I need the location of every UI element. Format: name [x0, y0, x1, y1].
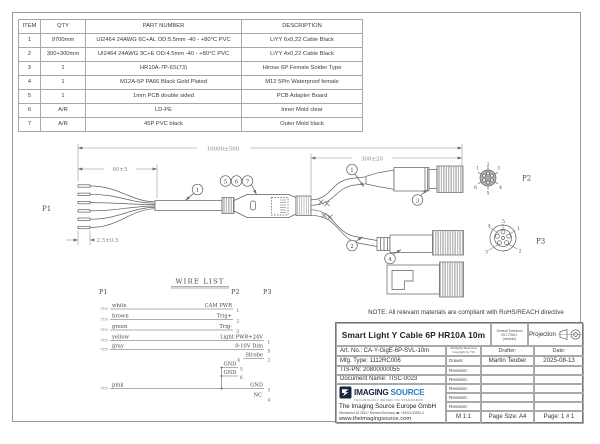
p3-pin-number: 2 [518, 248, 521, 254]
tin-label: TIN [101, 338, 109, 343]
drawing-title: Smart Light Y Cable 6P HR10A 10m [336, 323, 491, 346]
p2-tick [495, 172, 498, 174]
gnd-junction-dot [221, 375, 223, 377]
m12-connector-rotated [387, 262, 464, 297]
wire-signal-label: Trig+ [217, 314, 232, 320]
materials-note: NOTE: All relevant materials are complia… [352, 309, 580, 316]
wire-signal-label: 0-10V Dim [235, 344, 263, 350]
wire-signal-label: Trig- [219, 324, 232, 330]
arrowhead [311, 157, 315, 160]
p2-pin-hole [487, 181, 490, 184]
wire-list-header-p2: P2 [231, 288, 240, 296]
p2-pin-number: 4 [499, 185, 502, 191]
y-splitter-mold [234, 195, 296, 218]
copyright-box: All Rights Reserved Copyright by TIS [446, 346, 481, 356]
wire-signal-label: Strobe [245, 353, 263, 359]
p2-tick [478, 172, 481, 174]
p2-pin-number: 3 [497, 166, 500, 172]
p3-pin-number: 4 [487, 223, 490, 229]
main-cable [155, 201, 222, 211]
wire-color-label: yellow [111, 335, 129, 341]
dimension-strip-text: 60±5 [112, 167, 128, 173]
tinned-wire-end [78, 193, 90, 195]
wire [90, 209, 156, 228]
revision-value-cell [481, 402, 534, 411]
logo-text-imaging: IMAGING [354, 388, 389, 397]
revision-label: Revision: [446, 384, 481, 393]
svg-text:1: 1 [196, 188, 200, 194]
p2-tick [495, 182, 498, 184]
tinned-wire-end [78, 201, 90, 203]
scale-cell: M 1:1 [446, 411, 481, 425]
arrowhead [90, 239, 94, 242]
tinned-wire-end [78, 226, 90, 228]
company-name: The Imaging Source Europe GmbH [339, 403, 445, 410]
wire-list-header-p1: P1 [99, 288, 108, 296]
logo-text-source: SOURCE [391, 388, 425, 397]
wire-list-row: TINwhiteCAM PWR1 [101, 303, 240, 314]
dimension-tin-text: 2.5±0.5 [97, 238, 120, 244]
wire-list-row: TINpinkGND3 [101, 383, 271, 394]
pin-number: 1 [268, 340, 271, 345]
tin-label: TIN [101, 327, 109, 332]
projection-symbol-icon [558, 328, 583, 341]
logo-cell: IMAGINGSOURCE TECHNOLOGY BASED ON STANDA… [336, 384, 446, 425]
wire-signal-label: CAM PWR [205, 303, 233, 309]
revision-value-cell [534, 402, 584, 411]
pin-number: 3 [268, 388, 271, 393]
pin-number: 6 [240, 376, 243, 381]
p3-pin-number: 1 [517, 226, 520, 232]
tis-pn: TIS-PN: 20800000055 [336, 366, 446, 375]
pin-number: 1 [237, 309, 240, 314]
p2-pin-number: 6 [474, 185, 477, 191]
wire-list-title: WIRE LIST [175, 278, 224, 286]
pin-number: 4 [237, 358, 240, 363]
p2-pin-hole [487, 172, 490, 175]
art-no: Art. No.: CA-Y-GigE-6P-SVL-10m [336, 346, 446, 356]
revision-value-cell [481, 375, 534, 384]
p2-label: P2 [522, 175, 531, 183]
projection-box: Projection [528, 323, 584, 346]
svg-text:7: 7 [246, 179, 250, 185]
arrowhead [458, 157, 462, 160]
page-number-cell: Page: 1 # 1 [534, 411, 584, 425]
p2-pinout: 123456 P2 [474, 162, 531, 197]
wire-color-label: brown [112, 314, 129, 320]
p1-wires [78, 185, 156, 229]
p2-pin-hole [490, 179, 493, 182]
revision-label: Revision: [446, 402, 481, 411]
pin-number: 4 [268, 398, 271, 403]
ferrite-hatch [223, 198, 233, 213]
p2-pin-number: 2 [486, 162, 489, 168]
revision-value-cell [534, 393, 584, 402]
revision-value-cell [481, 393, 534, 402]
dimension-overall-text: 10000±500 [207, 146, 240, 152]
svg-text:2: 2 [350, 244, 354, 250]
revision-value-cell [481, 384, 534, 393]
p3-label: P3 [536, 238, 545, 246]
revision-label: Revision: [446, 375, 481, 384]
dimension-overall-length: 10000±500 [78, 146, 462, 152]
wire-list-row: TINbrownTrig+2 [101, 314, 240, 325]
p2-pin-hole [483, 174, 486, 177]
svg-text:4: 4 [388, 257, 392, 263]
wire-list: WIRE LIST P1 P2 P3 TINwhiteCAM PWR1TINbr… [99, 278, 272, 404]
date-label: Date: [534, 346, 584, 356]
wire-list-row: TINgreenTrig-3 [101, 324, 240, 335]
revision-value-cell [534, 366, 584, 375]
wire-color-label: gray [112, 344, 124, 350]
arrowhead [153, 168, 157, 171]
p2-tick [478, 182, 481, 184]
mfg-type: Mfg. Type: 1112RC006 [336, 356, 446, 366]
hirose-knurl-hatch [438, 166, 462, 192]
revision-value-cell [534, 384, 584, 393]
copyright-line2: Copyright by TIS [450, 351, 476, 355]
pin-number: 5 [240, 367, 243, 372]
drafter-name: Martin Teuber [481, 356, 534, 366]
page-size-cell: Page Size: A4 [481, 411, 534, 425]
top-branch-cable [311, 177, 366, 206]
wire [90, 186, 156, 202]
dimension-branch-length: 300±20 [311, 156, 462, 162]
p1-label: P1 [42, 205, 51, 213]
dimension-strip-length: 60±5 [78, 167, 157, 173]
tin-label: TIN [101, 347, 109, 352]
revision-label: Revision: [446, 393, 481, 402]
wire-signal-label: Light PWR+24V [220, 335, 263, 341]
revision-value-cell [534, 375, 584, 384]
p2-pin-hole [483, 179, 486, 182]
drawing-date: 2025-08-13 [534, 356, 584, 366]
gnd-junction-dot [221, 388, 223, 390]
p3-pinout: 12345 P3 [485, 219, 545, 256]
arrowhead [78, 168, 82, 171]
bottom-branch-cable [311, 210, 377, 247]
wire-color-label: pink [112, 383, 124, 389]
arrowhead [458, 147, 462, 150]
projection-label: Projection [529, 332, 556, 338]
engineering-drawing-page: { "bom": { "headers": ["ITEM", "QTY", "P… [0, 0, 600, 444]
imaging-source-logo-icon [339, 386, 352, 399]
title-block: Smart Light Y Cable 6P HR10A 10m General… [335, 322, 583, 423]
wire-signal-label: GND [224, 362, 237, 368]
tolerance-line1: General Tolerance [497, 329, 523, 333]
pin-number: 2 [268, 358, 271, 363]
tolerance-box: General Tolerance ISO 2768-1 (medium) [491, 323, 528, 346]
pin-number: 2 [237, 319, 240, 324]
tin-label: TIN [101, 386, 109, 391]
p2-pin-hole [490, 174, 493, 177]
wire-signal-label: GND [250, 383, 263, 389]
logo-tagline: TECHNOLOGY BASED ON STANDARDS [354, 398, 445, 402]
p3-pin-number: 3 [485, 249, 488, 255]
svg-text:3: 3 [416, 198, 420, 204]
wire-list-rows: TINwhiteCAM PWR1TINbrownTrig+2TINgreenTr… [101, 303, 271, 403]
wire-list-row: NC4 [253, 393, 270, 404]
wire-color-label: green [112, 324, 128, 330]
wire-list-header-p3: P3 [263, 288, 272, 296]
pin-number: 5 [268, 349, 271, 354]
p2-pin-number: 1 [476, 166, 479, 172]
dimension-branch-text: 300±20 [361, 156, 384, 162]
svg-text:5: 5 [224, 179, 228, 185]
balloon-mold-group: 5 6 7 [220, 176, 256, 195]
revision-value-cell [481, 366, 534, 375]
arrowhead [74, 239, 78, 242]
svg-text:1: 1 [350, 168, 354, 174]
wire-signal-label: NC [253, 393, 262, 399]
gnd-junction-dot [221, 367, 223, 369]
tolerance-line3: (medium) [497, 337, 523, 341]
arrowhead [78, 147, 82, 150]
mold-bands [296, 196, 311, 216]
wire [90, 194, 156, 203]
tin-label: TIN [101, 317, 109, 322]
revision-label: Revision: [446, 366, 481, 375]
company-address: Überseetor 18 28217 Bremen/Germany ☎ +49… [339, 411, 445, 415]
drawn-label: Drawn: [446, 356, 481, 366]
drafter-label: Drafter: [481, 346, 534, 356]
p2-pin-number: 5 [486, 190, 489, 196]
wire [90, 207, 156, 219]
wire-list-row: Strobe24 [237, 353, 270, 364]
p3-pin-number: 5 [502, 219, 505, 225]
wire-signal-label: GND [224, 370, 237, 376]
tinned-wire-end [78, 210, 90, 212]
tinned-wire-end [78, 185, 90, 187]
tin-label: TIN [101, 306, 109, 311]
company-website: www.theimagingsource.com [339, 416, 445, 422]
wire-color-label: white [112, 303, 127, 309]
svg-text:6: 6 [235, 179, 239, 185]
arrowhead [360, 182, 365, 187]
tinned-wire-end [78, 218, 90, 220]
mold-bands-ribs [297, 196, 310, 215]
doc-name: Document Name: TISC-0023 [336, 375, 446, 384]
